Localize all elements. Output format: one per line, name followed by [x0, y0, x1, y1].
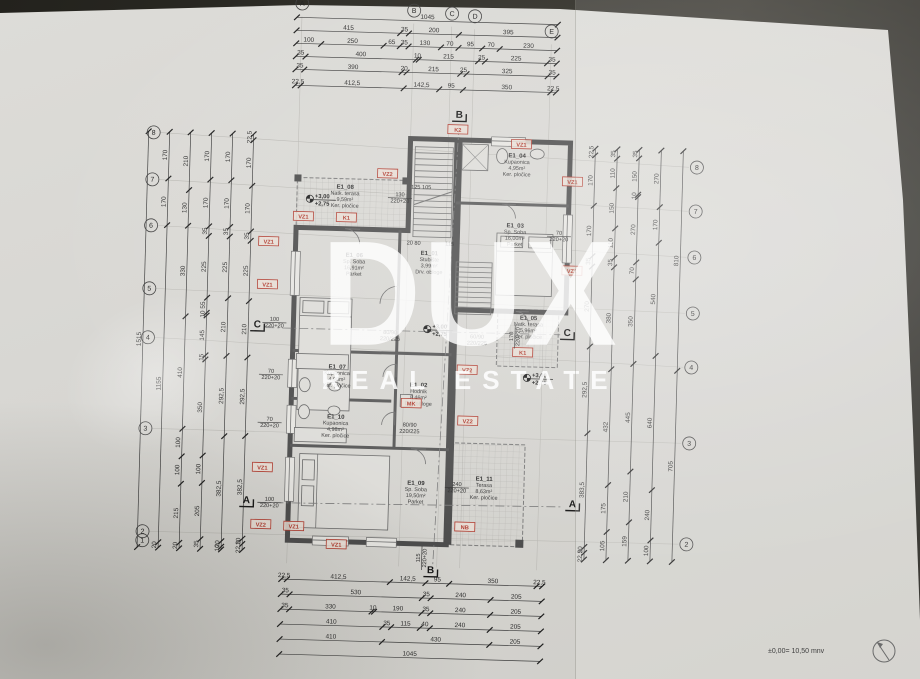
section-marker-label: B	[427, 565, 435, 576]
red-tag-label: VZ2	[462, 368, 472, 374]
opening-size-label: 70220+20	[259, 368, 283, 381]
dimension-value: 292,5	[218, 387, 225, 404]
opening-size-line: 115	[445, 242, 454, 248]
dimension-value: 95	[467, 41, 475, 48]
grid-marker-label: 3	[143, 426, 147, 433]
dimension-row: 4103511540240205	[277, 617, 544, 634]
dimension-value: 410	[325, 633, 336, 640]
room-label-line: Ker. pločice	[470, 495, 498, 502]
toilet	[298, 405, 309, 419]
dimension-value: 270	[584, 301, 591, 312]
red-tag-label: NB	[461, 525, 469, 531]
dimension-value: 22,5	[278, 572, 291, 579]
dimension-value: 170	[204, 150, 211, 161]
dimension-value: 35	[422, 606, 430, 613]
dimension-value: 22,5	[547, 85, 560, 92]
dimension-value: 35	[548, 56, 556, 63]
dimension-value: 22,5	[292, 78, 305, 85]
opening-size-line: 220/225	[399, 429, 419, 436]
floor-plan-drawing: 1045415352003951002506535130709570230354…	[0, 0, 920, 679]
dimension-value: 240	[455, 607, 466, 614]
dimension-value: 215	[428, 66, 439, 73]
dimension-value: 240	[644, 509, 651, 520]
opening-size-line: 70	[268, 369, 274, 375]
dimension-value: 35	[548, 69, 556, 76]
opening-size-line: 220+20	[260, 503, 279, 510]
grid-axis-line	[155, 337, 684, 367]
dimension-value: 35	[401, 39, 409, 46]
red-tag: VZ2	[251, 519, 271, 529]
red-tag: MK	[401, 398, 421, 408]
dimension-value: 130	[181, 202, 188, 213]
grid-axis-line	[537, 44, 552, 570]
dimension-row: 35400102152522535	[293, 49, 560, 66]
opening-size-line: 240	[452, 482, 462, 488]
dimension-value: 159	[621, 536, 628, 547]
section-marker: B	[452, 110, 466, 122]
dimension-value: 35	[632, 150, 639, 158]
red-tag: VZ1	[284, 521, 304, 531]
dimension-row: 3553035240205	[278, 587, 545, 604]
dimension-value: 1155	[155, 376, 162, 390]
dimension-value: 410	[326, 618, 337, 625]
dimension-value: 110	[608, 237, 615, 248]
dimension-value: 65	[388, 39, 396, 46]
red-tag-label: K1	[343, 216, 350, 222]
grid-marker-label: 6	[149, 223, 153, 230]
dimension-value: 35	[244, 232, 251, 240]
opening-size-line: 70	[267, 417, 273, 423]
red-tag-label: VZ2	[382, 172, 392, 178]
grid-axis-line	[156, 289, 685, 314]
dimension-row: 35390202152532535	[293, 62, 560, 79]
dimension-value: 170	[224, 198, 231, 209]
red-tag: VZ1	[562, 177, 582, 187]
level-value: +3,00	[432, 324, 447, 330]
dimension-column: 351501027070350445210159	[621, 147, 642, 564]
room-label: E1_09Sp. Soba19,50m²Parket	[404, 481, 427, 506]
opening-size-line: 220+20	[265, 323, 284, 330]
grid-marker-label: 4	[146, 335, 150, 342]
red-tag: VZ1	[252, 462, 272, 472]
red-tag: VZ1	[259, 236, 279, 246]
room-label-line: Ker. pločice	[503, 172, 531, 179]
section-marker: A	[565, 499, 579, 511]
dimension-value: 205	[510, 624, 521, 631]
section-marker-label: B	[456, 110, 464, 121]
dimension-value: 445	[625, 412, 632, 423]
dimension-value: 170	[162, 149, 169, 160]
opening-size-line: 220+20	[447, 488, 466, 495]
dimension-value: 35	[607, 258, 614, 266]
section-marker-label: C	[254, 319, 262, 330]
dimension-value: 810	[673, 255, 680, 266]
grid-marker-label: 7	[694, 209, 698, 216]
dimension-value: 25	[478, 54, 486, 61]
dimension-value: 1045	[403, 651, 418, 658]
red-tag-label: MK	[407, 402, 416, 408]
red-tag: K2	[448, 125, 468, 135]
dimension-value: 100	[175, 437, 182, 448]
dimension-value: 190	[392, 605, 403, 612]
north-arrow-icon	[873, 640, 895, 662]
grid-marker-label: A	[300, 1, 305, 8]
opening-size-label: 20 80	[407, 240, 421, 246]
dimension-value: 350	[197, 402, 204, 413]
dimension-value: 20	[151, 541, 158, 549]
red-tag-label: K1	[519, 351, 526, 357]
dimension-value: 170	[246, 157, 253, 168]
dimension-value: 20	[172, 541, 179, 549]
room-label-line: Parket	[507, 242, 523, 248]
dimension-value: 330	[180, 265, 187, 276]
dimension-row: 1045	[276, 647, 543, 664]
opening-size-line: 80/90	[383, 330, 397, 336]
dimension-value: 382,5	[216, 480, 223, 497]
dimension-value: 35	[585, 257, 592, 265]
dimension-value: 412,5	[344, 80, 361, 87]
section-marker: A	[239, 495, 253, 507]
dimension-value: 95	[448, 83, 456, 90]
dimension-value: 35	[282, 587, 290, 594]
dimension-value: 35	[423, 591, 431, 598]
opening-size-line: 70	[556, 231, 562, 237]
level-value: +3,00	[315, 194, 330, 200]
opening-size-line: 220/225	[380, 336, 400, 343]
dimension-value: 330	[325, 603, 336, 610]
grid-marker-label: 3	[687, 441, 691, 448]
opening-size-line: 220+20	[260, 423, 279, 430]
grid-marker-label: 2	[684, 542, 688, 549]
red-tag: K1	[513, 347, 533, 357]
red-tag: VZ1	[562, 266, 582, 276]
grid-marker-label: 4	[689, 365, 693, 372]
dimension-value: 230	[523, 43, 534, 50]
dimension-value: 35	[281, 602, 289, 609]
dimension-value: 225	[243, 265, 250, 276]
red-tag: VZ1	[511, 139, 531, 149]
dimension-column: 270170540640240100	[643, 148, 664, 565]
dimension-value: 22,5	[533, 579, 546, 586]
level-value: +3,00	[532, 373, 547, 379]
red-tag-label: VZ1	[331, 542, 341, 548]
grid-marker-label: D	[472, 14, 477, 21]
dimension-value: 170	[244, 203, 251, 214]
terrace-column	[294, 174, 301, 181]
dimension-value: 540	[650, 293, 657, 304]
dimension-value: 382,5	[237, 479, 244, 496]
dimension-value: 350	[627, 316, 634, 327]
dimension-value: 115	[400, 620, 411, 627]
grid-marker-label: 6	[692, 255, 696, 262]
opening-size-label: 125 105	[411, 185, 431, 192]
dimension-column: 22,517017035225210292,5382,52022,5	[235, 130, 257, 553]
grid-marker-label: 5	[147, 286, 151, 293]
dimension-value: 395	[503, 29, 514, 36]
dimension-value: 100	[643, 545, 650, 556]
opening-size-line: 20 80	[407, 240, 421, 246]
room-label-line: Parket	[346, 271, 362, 277]
section-marker: C	[250, 319, 264, 331]
dimension-value: 150	[609, 202, 616, 213]
dimension-row: 22,5412,5142,59535022,5	[278, 572, 546, 589]
dimension-value: 105	[599, 540, 606, 551]
opening-size-line: 130	[395, 192, 405, 198]
dimension-value: 170	[203, 197, 210, 208]
dimension-value: 35	[223, 228, 230, 236]
dimension-value: 412,5	[330, 573, 347, 580]
red-tag-label: VZ1	[288, 524, 298, 530]
dimension-row: 1045	[294, 10, 561, 27]
dimension-value: 35	[401, 26, 409, 33]
dimension-value: 705	[667, 460, 674, 471]
dimension-value: 225	[511, 55, 522, 62]
dimension-value: 142,5	[413, 82, 430, 89]
dimension-value: 142,5	[400, 575, 417, 582]
opening-size-line: 115	[416, 553, 422, 562]
grid-marker-label: B	[412, 8, 417, 15]
room-label: E1_06Sp. Soba16,91m²Parket	[343, 253, 366, 278]
dimension-value: 205	[511, 594, 522, 601]
section-marker: C	[560, 328, 574, 340]
dimension-value: 292,5	[239, 388, 246, 405]
room-label-line: Drv. obloge	[415, 269, 442, 276]
dimension-value: 210	[241, 323, 248, 334]
dimension-value: 25	[460, 67, 468, 74]
section-marker-label: C	[563, 328, 571, 339]
red-tag: VZ1	[257, 279, 277, 289]
dimension-value: 170	[587, 175, 594, 186]
level-marker: +3,00+2,75	[423, 324, 453, 338]
opening-size-line: 125 105	[411, 185, 431, 192]
dimension-value: 175	[600, 503, 607, 514]
dimension-value: 70	[487, 42, 495, 49]
dimension-value: 530	[350, 589, 361, 596]
red-tag-label: VZ2	[256, 522, 266, 528]
dimension-value: 150	[631, 171, 638, 182]
red-tag-label: VZ1	[257, 465, 267, 471]
dimension-value: 145	[199, 329, 206, 340]
dimension-value: 210	[183, 155, 190, 166]
red-tag-label: VZ1	[263, 239, 273, 245]
dimension-value: 383,5	[579, 481, 586, 498]
dimension-value: 250	[347, 38, 358, 45]
room-label-line: Ker. pločice	[321, 433, 349, 440]
dimension-value: 205	[510, 639, 521, 646]
level-marker: +3,00+2,75	[523, 373, 553, 387]
opening-size-label: 60/90220/225	[467, 334, 488, 347]
dimension-row: 353301019035240205	[278, 602, 545, 619]
dimension-value: 270	[630, 224, 637, 235]
dimension-value: 35	[383, 620, 391, 627]
dimension-value: 100	[174, 464, 181, 475]
dimension-value: 205	[194, 505, 201, 516]
opening-size-label: 100220+20	[257, 496, 281, 509]
toilet	[299, 378, 310, 392]
opening-size-line: 60/90	[470, 334, 484, 340]
red-tag: VZ2	[378, 169, 398, 179]
red-tag-label: VZ1	[516, 142, 526, 148]
dimension-value: 205	[510, 609, 521, 616]
dimension-value: 325	[502, 68, 513, 75]
opening-size-line: 220+20	[549, 237, 568, 244]
dimension-value: 270	[653, 173, 660, 184]
dimension-value: 215	[173, 507, 180, 518]
dimension-value: 292,5	[581, 381, 588, 398]
dimension-value: 170	[586, 225, 593, 236]
dimension-value: 35	[296, 62, 304, 69]
dimension-value: 210	[220, 321, 227, 332]
room-label-line: Ker. pločice	[323, 383, 351, 390]
opening-size-line: 170	[509, 332, 515, 342]
photo-background: 1045415352003951002506535130709570230354…	[0, 0, 920, 679]
opening-size-label: 100220+20	[262, 316, 286, 329]
dimension-value: 432	[602, 421, 609, 432]
dimension-value: 640	[647, 417, 654, 428]
grid-marker-label: 1	[140, 538, 144, 545]
dimension-value: 170	[161, 196, 168, 207]
red-tag-label: K2	[454, 128, 461, 134]
red-tag: K1	[336, 213, 356, 223]
dimension-value: 380	[606, 312, 613, 323]
dimension-value: 350	[501, 84, 512, 91]
grid-marker-label: C	[449, 11, 454, 18]
dimension-row: 41535200395	[294, 23, 561, 40]
dimension-value: 200	[429, 27, 440, 34]
red-tag: VZ2	[458, 416, 478, 426]
room-label-line: Parket	[408, 499, 424, 505]
dimension-value: 170	[225, 151, 232, 162]
room-label-line: Ker. pločice	[331, 203, 359, 210]
opening-size-line: 220+20	[515, 327, 522, 346]
dimension-value: 55	[200, 301, 207, 309]
dimension-value: 70	[629, 267, 636, 275]
dimension-value: 35	[193, 540, 200, 548]
sink	[530, 149, 544, 159]
red-tag: VZ2	[457, 365, 477, 375]
grid-marker-label: 8	[695, 165, 699, 172]
opening-size-line: 100	[265, 497, 275, 503]
opening-size-label: 80/90220/225	[399, 422, 420, 435]
dimension-value: 130	[419, 40, 430, 47]
dimension-value: 210	[623, 491, 630, 502]
dimension-value: 35	[297, 49, 305, 56]
grid-marker-label: E	[549, 29, 554, 36]
opening-size-line: 220/225	[467, 341, 487, 348]
red-tag-label: VZ2	[462, 419, 472, 425]
dimension-value: 40	[421, 621, 429, 628]
dimension-row: 410430205	[277, 632, 544, 649]
dimension-value: 225	[222, 261, 229, 272]
red-tag-label: VZ1	[567, 269, 577, 275]
dimension-value: 35	[610, 150, 617, 158]
grid-marker-label: 2	[140, 529, 144, 536]
dimension-column: 3511015011035380432175105	[599, 146, 620, 563]
dimension-value: 100	[195, 463, 202, 474]
section-marker-label: A	[243, 495, 251, 506]
dimension-column: 22,517017035270292,5383,52022,5	[577, 145, 598, 562]
red-tag-label: VZ1	[567, 180, 577, 186]
dimension-column: 21013033041010010021520	[172, 129, 194, 551]
dimension-value: 390	[348, 64, 359, 71]
dimension-value: 400	[355, 51, 366, 58]
dimension-value: 410	[177, 367, 184, 378]
dimension-value: 415	[343, 25, 354, 32]
opening-size-line: 80/90	[403, 422, 417, 428]
dimension-value: 350	[488, 578, 499, 585]
red-tag: NB	[455, 522, 475, 532]
grid-marker-label: 5	[691, 311, 695, 318]
opening-size-label: 70220+20	[257, 416, 281, 429]
grid-marker-label: 7	[150, 177, 154, 184]
level-value: +2,75	[315, 201, 331, 207]
opening-size-line: 220+20	[261, 375, 280, 382]
opening-size-line: 100	[270, 317, 280, 323]
opening-size-label: 115	[445, 242, 454, 248]
red-tag: VZ1	[293, 211, 313, 221]
grid-marker-label: 8	[152, 130, 156, 137]
dimension-value: 70	[446, 41, 454, 48]
dimension-value: 1045	[420, 14, 435, 21]
dimension-value: 240	[454, 622, 465, 629]
terrace-column	[515, 540, 523, 548]
red-tag: VZ1	[326, 539, 346, 549]
dimension-value: 100	[303, 37, 314, 44]
red-tag-label: VZ1	[262, 282, 272, 288]
dimension-row: 22,5412,5142,59535022,5	[292, 78, 560, 95]
dimension-row: 1002506535130709570230	[293, 36, 560, 53]
dimension-value: 430	[430, 636, 441, 643]
dimension-value: 110	[610, 168, 617, 179]
dimension-value: 170	[652, 219, 659, 230]
dimension-value: 240	[455, 592, 466, 599]
opening-size-line: 220+20	[390, 198, 409, 205]
dimension-value: 225	[201, 261, 208, 272]
red-tag-label: VZ1	[298, 214, 308, 220]
room-label: E1_10Kupaonica4,98m²Ker. pločice	[321, 414, 350, 439]
level-value: +2,75	[432, 332, 448, 338]
dimension-value: 35	[202, 227, 209, 235]
section-marker-label: A	[569, 499, 577, 510]
room-label: E1_01Stubište3,99m²Drv. obloge	[415, 251, 443, 276]
level-value: +2,75	[532, 380, 548, 386]
datum-note: ±0,00= 10,50 mnv	[768, 648, 824, 655]
dimension-value: 215	[443, 53, 454, 60]
